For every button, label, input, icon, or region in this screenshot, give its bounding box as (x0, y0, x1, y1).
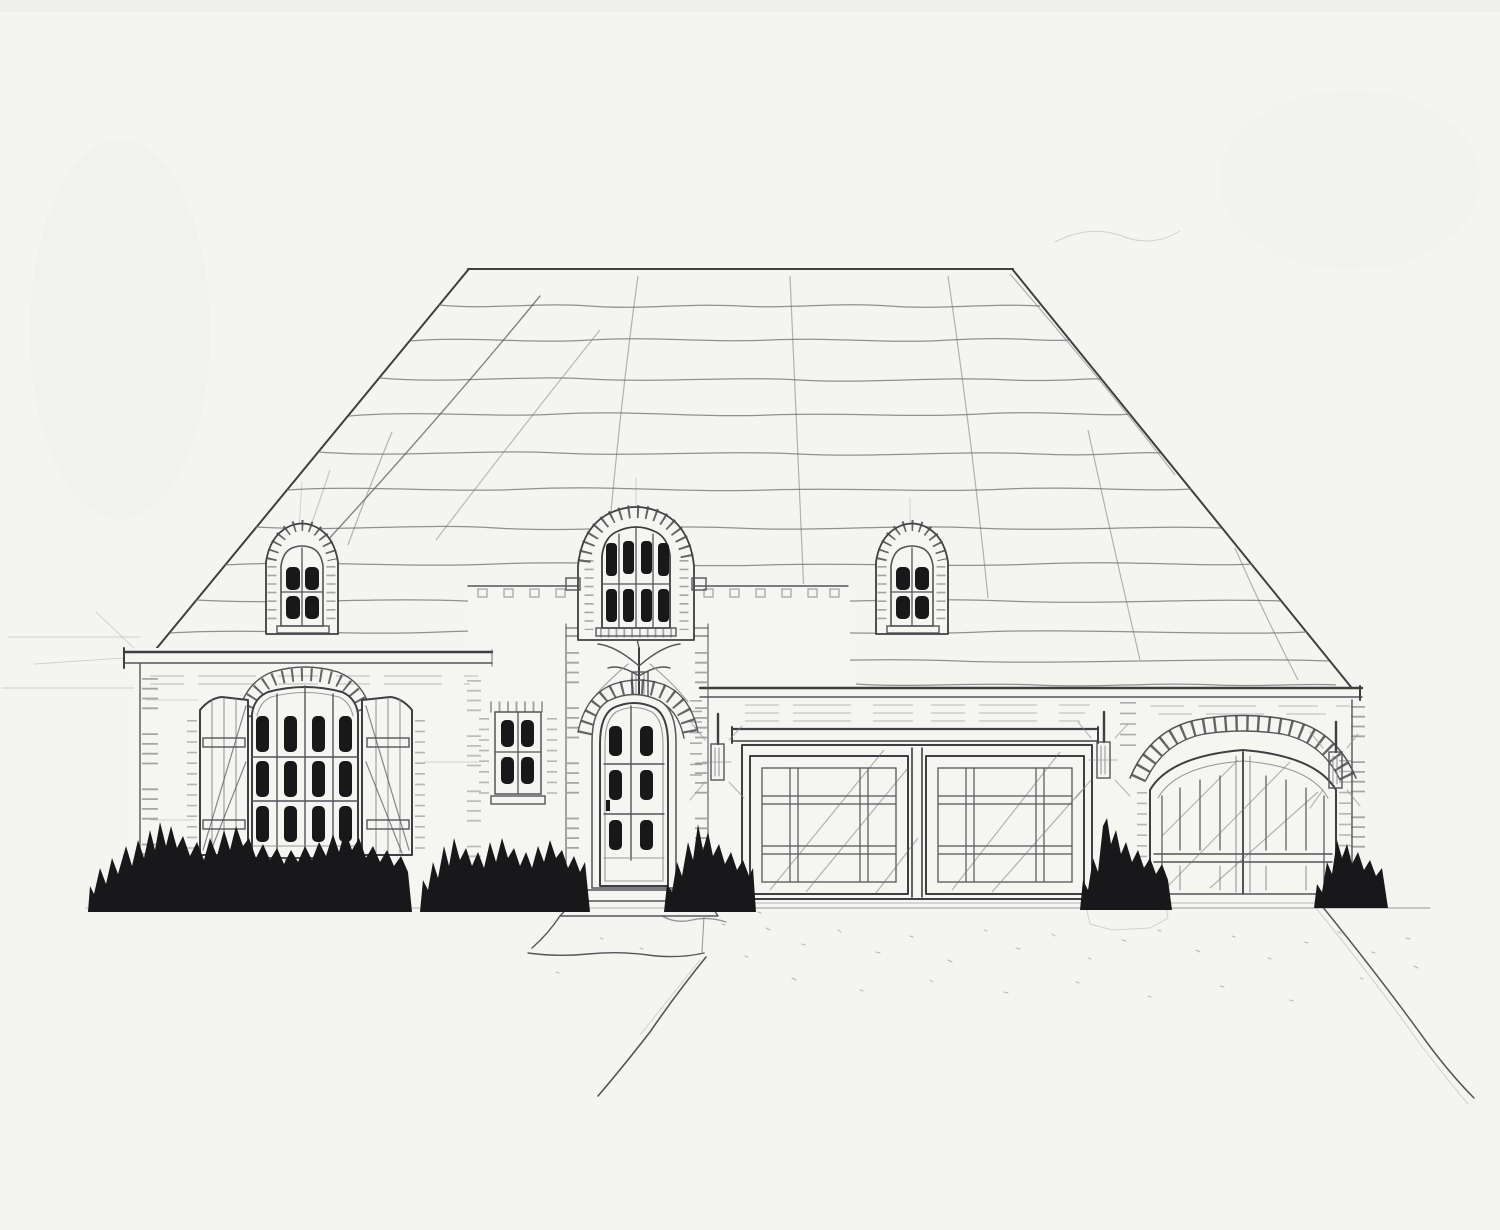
left-dormer (266, 524, 338, 635)
door-pane (609, 726, 622, 756)
window-pane (286, 596, 300, 619)
window-pane (312, 806, 325, 842)
door-pane (640, 820, 653, 850)
window-pane (623, 541, 634, 574)
window-pane (284, 761, 297, 797)
window-pane (896, 596, 910, 619)
door-pane (640, 726, 653, 756)
window-pane (312, 716, 325, 752)
window-pane (521, 757, 534, 784)
window-pane (256, 761, 269, 797)
window-pane (305, 567, 319, 590)
window-pane (606, 543, 617, 576)
window-pane (641, 589, 652, 622)
window-pane (312, 761, 325, 797)
window-pane (284, 716, 297, 752)
window-pane (305, 596, 319, 619)
window-pane (256, 716, 269, 752)
window-pane (623, 589, 634, 622)
window-pane (641, 541, 652, 574)
paper-blotch (30, 140, 210, 520)
window-pane (339, 761, 352, 797)
house-elevation-sketch (0, 0, 1500, 1230)
door-handle (606, 800, 610, 811)
window-pane (606, 589, 617, 622)
sketch-page (0, 0, 1500, 1230)
entry-door (592, 695, 676, 889)
scan-edge-shade (0, 0, 1500, 12)
front-wall-upper (740, 584, 850, 696)
door-pane (609, 820, 622, 850)
door-pane (640, 770, 653, 800)
paper-blotch (340, 1100, 1180, 1220)
paper-blotch (1220, 90, 1480, 270)
window-pane (501, 757, 514, 784)
window-pane (658, 589, 669, 622)
window-pane (256, 806, 269, 842)
window-pane (658, 543, 669, 576)
window-pane (915, 567, 929, 590)
window-pane (284, 806, 297, 842)
window-pane (339, 716, 352, 752)
door-pane (609, 770, 622, 800)
window-pane (915, 596, 929, 619)
window-pane (286, 567, 300, 590)
window-pane (896, 567, 910, 590)
window-pane (521, 720, 534, 747)
right-dormer (876, 524, 948, 635)
window-pane (501, 720, 514, 747)
double-garage-door (732, 727, 1098, 899)
